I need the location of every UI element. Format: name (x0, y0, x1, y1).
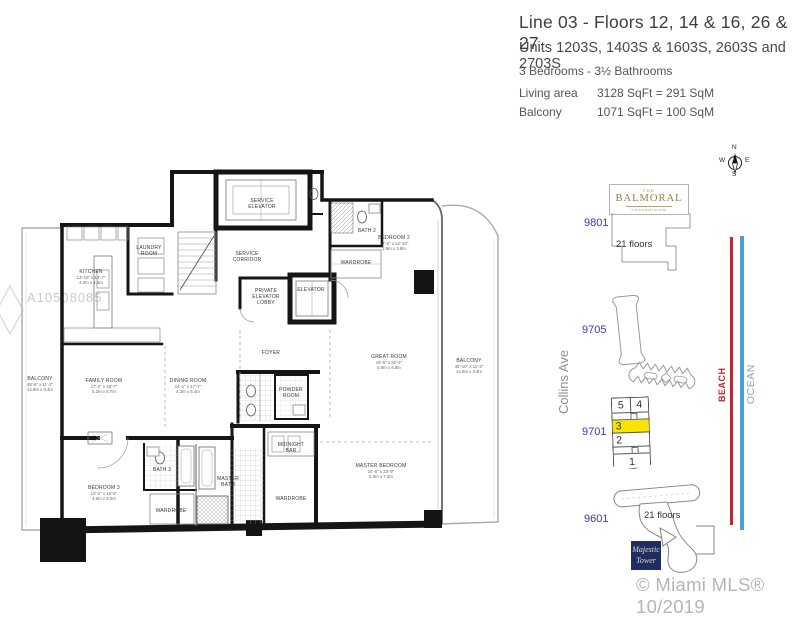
room-label-private-elevator-lobby: PRIVATEELEVATORLOBBY (252, 288, 279, 306)
balmoral-rule (626, 206, 672, 207)
room-label-laundry: LAUNDRYROOM (136, 245, 161, 257)
balmoral-logo: THE BALMORAL CONDOMINIUM (609, 184, 689, 215)
compass-n: N (732, 144, 737, 151)
floorplan-sheet: { "header": { "line1": "Line 03 - Floors… (0, 0, 800, 600)
street-label-collins-ave: Collins Ave (556, 336, 571, 414)
balmoral-floors: 21 floors (616, 239, 652, 250)
address-9701: 9701 (582, 426, 606, 438)
balcony-area-row: Balcony 1071 SqFt = 100 SqM (519, 105, 714, 119)
room-label-wardrobe-3: WARDROBE (156, 508, 187, 514)
floorplan-drawing (0, 160, 515, 600)
room-label-master-bedroom: MASTER BEDROOM16'-5" x 23'-9"5.0m x 7.2m (356, 463, 407, 479)
stack-unit-5: 5 (612, 398, 630, 412)
room-label-bedroom-2: BEDROOM 212'-5" x 12'-10"3.8m x 3.9m (378, 235, 410, 251)
stack-unit-1: 1 (629, 456, 635, 468)
stack-unit-3: 3 (616, 420, 622, 432)
address-9801: 9801 (584, 217, 608, 229)
room-label-service-corridor: SERVICECORRIDOR (233, 251, 262, 263)
room-label-wardrobe-master: WARDROBE (276, 496, 307, 502)
living-area-row: Living area 3128 SqFt = 291 SqM (519, 86, 714, 100)
room-label-master-bath: MASTERBATH (217, 476, 239, 488)
room-label-balcony-left: BALCONY48'-6" x 11'-2"14.8m x 3.4m (27, 376, 53, 392)
room-label-bath-3: BATH 3 (153, 467, 171, 473)
compass-e: E (745, 157, 749, 164)
stack-unit-4: 4 (629, 397, 648, 411)
address-9601: 9601 (584, 513, 608, 525)
stack-unit-3-highlighted: 3 (613, 419, 649, 434)
room-label-kitchen: KITCHEN13'-10" x 14'-7"4.2m x 4.4m (77, 269, 106, 285)
majestic-logo-line1: Majestic (631, 544, 661, 555)
stairs (178, 232, 216, 294)
stack-row-2: 2 (613, 433, 649, 448)
room-label-foyer: FOYER (262, 350, 280, 356)
majestic-floors: 21 floors (644, 510, 680, 521)
room-label-bedroom-3: BEDROOM 313'-2" x 16'-6"4.0m x 5.0m (88, 485, 120, 501)
stack-row-1: 1 (614, 454, 650, 469)
glass-walls (432, 200, 442, 524)
living-area-value: 3128 SqFt = 291 SqM (597, 86, 714, 100)
room-label-service-elevator: SERVICEELEVATOR (248, 198, 275, 210)
room-label-midnight-bar: MIDNIGHTBAR (278, 442, 304, 454)
beach-label: BEACH (717, 362, 727, 402)
compass-needle-icon (726, 152, 744, 174)
balmoral-name: BALMORAL (610, 193, 688, 205)
building-9601-footprint (600, 476, 730, 580)
room-label-great-room: GREAT ROOM19'-6" x 22'-4"5.9m x 6.8m (371, 354, 407, 370)
ocean-line (740, 236, 745, 530)
room-label-dining-room: DINING ROOM14'-1" x 17'-7"4.3m x 5.4m (170, 378, 207, 394)
majestic-logo-line2: Tower (631, 555, 661, 566)
room-label-elevator: ELEVATOR (297, 287, 324, 293)
unit-stack-9701: 5 4 3 2 1 (611, 396, 651, 469)
balcony-area-value: 1071 SqFt = 100 SqM (597, 105, 714, 119)
stack-unit-2: 2 (616, 434, 622, 446)
beach-line (730, 237, 733, 525)
bath2-fixtures (331, 203, 381, 278)
room-label-bath-2: BATH 2 (358, 228, 376, 234)
stack-row-5-4: 5 4 (612, 397, 648, 413)
room-label-powder-room: POWDERROOM (279, 387, 303, 399)
address-9705: 9705 (582, 324, 606, 336)
balcony-area-label: Balcony (519, 105, 597, 119)
compass-icon: N W E S (719, 144, 751, 182)
living-area-label: Living area (519, 86, 597, 100)
majestic-tower-logo: Majestic Tower (631, 541, 661, 570)
room-label-wardrobe-2: WARDROBE (341, 260, 372, 266)
bed-bath-summary: 3 Bedrooms - 3½ Bathrooms (519, 64, 672, 78)
compass-w: W (719, 157, 725, 164)
room-label-family-room: FAMILY ROOM17'-2" x 18'-7"5.2m x 5.7m (86, 378, 122, 394)
ocean-label: OCEAN (745, 360, 757, 404)
balmoral-sub: CONDOMINIUM (610, 208, 688, 212)
copyright-notice: © Miami MLS® 10/2019 (636, 574, 800, 618)
room-label-balcony-right: BALCONY48'-10" x 11'-2"14.9m x 3.4m (455, 358, 484, 374)
